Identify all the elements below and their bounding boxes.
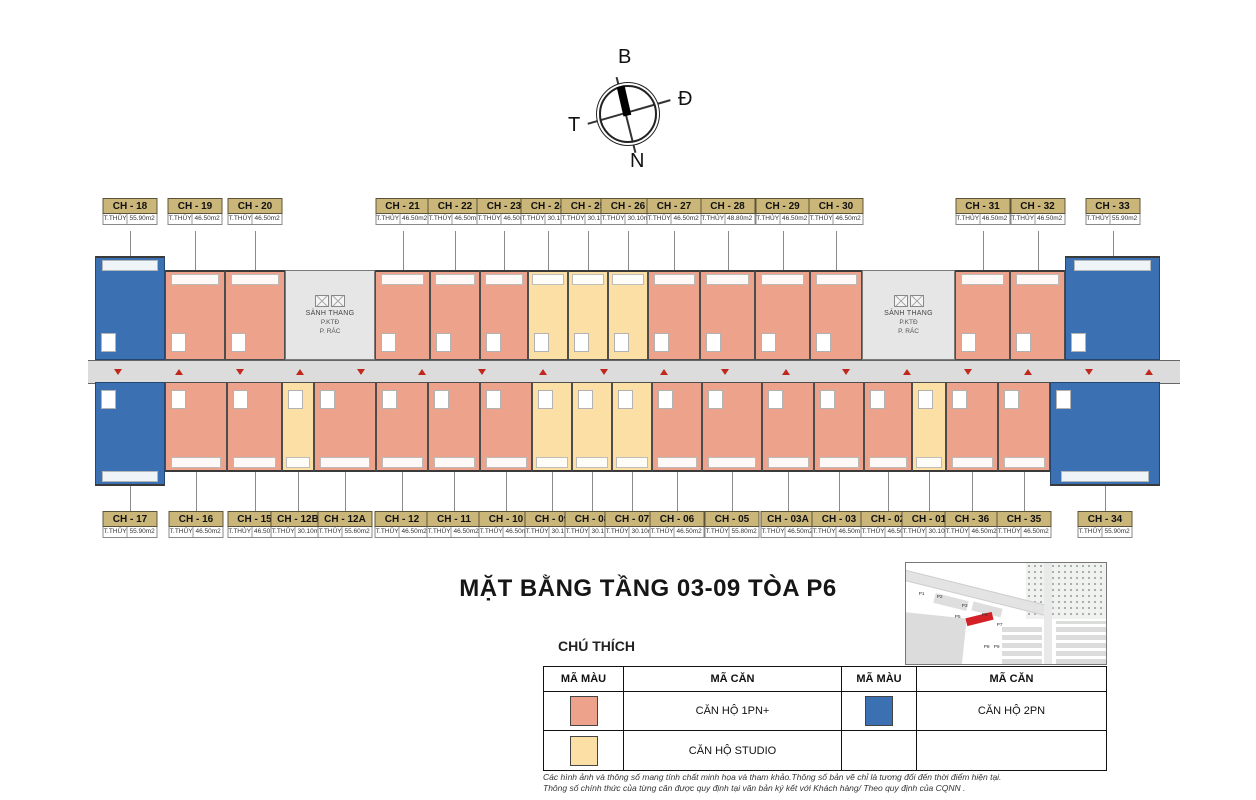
- minimap-label-p1: P1: [919, 592, 925, 597]
- unit-CH-26[interactable]: [608, 270, 648, 360]
- unit-area: T.THỦY46.50m2: [647, 214, 702, 225]
- unit-CH-28[interactable]: [700, 270, 755, 360]
- unit-area: T.THỦY46.50m2: [227, 527, 282, 538]
- unit-area: T.THỦY46.50m2: [812, 527, 867, 538]
- area-value: 46.50m2: [452, 527, 481, 537]
- unit-label-CH-12B[interactable]: CH - 12BT.THỦY30.10m2: [271, 511, 326, 538]
- unit-area: T.THỦY55.80m2: [705, 527, 760, 538]
- compass-east-label: Đ: [678, 88, 692, 111]
- unit-label-CH-21[interactable]: CH - 21T.THỦY46.50m2: [375, 198, 430, 225]
- unit-area: T.THỦY55.90m2: [1085, 214, 1140, 225]
- unit-label-CH-20[interactable]: CH - 20T.THỦY46.50m2: [228, 198, 283, 225]
- unit-area: T.THỦY46.50m2: [761, 527, 816, 538]
- unit-code: CH - 29: [755, 198, 810, 214]
- leader-line: [728, 231, 729, 273]
- legend-heading: CHÚ THÍCH: [558, 638, 635, 654]
- door-marker-icon: [660, 369, 668, 375]
- compass: B Đ N T: [560, 40, 720, 180]
- area-value: 46.50m2: [675, 527, 704, 537]
- unit-area: T.THỦY46.50m2: [861, 527, 916, 538]
- leader-line: [298, 469, 299, 513]
- legend-label-1pn: CĂN HỘ 1PN+: [624, 692, 842, 731]
- unit-label-CH-08[interactable]: CH - 08T.THỦY30.10m2: [565, 511, 620, 538]
- unit-CH-19[interactable]: [165, 270, 225, 360]
- compass-west-label: T: [568, 114, 580, 137]
- unit-code: CH - 23: [477, 198, 532, 214]
- legend-swatch-cell: [842, 692, 917, 731]
- unit-code: CH - 07: [605, 511, 660, 527]
- area-value: 46.50m2: [1022, 527, 1051, 537]
- leader-line: [888, 469, 889, 513]
- leader-line: [677, 469, 678, 513]
- unit-CH-06[interactable]: [652, 382, 702, 472]
- core-right: SẢNH THANGP.KTĐP. RÁC: [862, 270, 955, 360]
- unit-code: CH - 03: [812, 511, 867, 527]
- core-trash-label: P. RÁC: [898, 329, 919, 336]
- area-value: 46.50m2: [252, 527, 281, 537]
- leader-line: [788, 469, 789, 513]
- area-prefix: T.THỦY: [526, 527, 550, 537]
- unit-CH-09[interactable]: [532, 382, 572, 472]
- unit-code: CH - 22: [428, 198, 483, 214]
- unit-CH-12B[interactable]: [282, 382, 314, 472]
- unit-label-CH-03[interactable]: CH - 03T.THỦY46.50m2: [812, 511, 867, 538]
- area-prefix: T.THỦY: [1086, 214, 1110, 224]
- minimap-block-grid: [1002, 627, 1042, 664]
- area-value: 55.90m2: [128, 214, 157, 224]
- unit-code: CH - 21: [375, 198, 430, 214]
- area-value: 55.90m2: [128, 527, 157, 537]
- unit-label-CH-36[interactable]: CH - 36T.THỦY46.50m2: [945, 511, 1000, 538]
- unit-label-CH-27[interactable]: CH - 27T.THỦY46.50m2: [647, 198, 702, 225]
- door-marker-icon: [175, 369, 183, 375]
- area-prefix: T.THỦY: [478, 214, 502, 224]
- core-trash-label: P. RÁC: [320, 329, 341, 336]
- minimap-label-p6: P6: [982, 613, 988, 618]
- area-value: 46.50m2: [502, 214, 531, 224]
- minimap-road: [1044, 562, 1052, 665]
- elevator-icon: [894, 295, 908, 307]
- unit-label-CH-06[interactable]: CH - 06T.THỦY46.50m2: [650, 511, 705, 538]
- area-prefix: T.THỦY: [376, 527, 400, 537]
- area-value: 46.50m2: [672, 214, 701, 224]
- unit-code: CH - 30: [809, 198, 864, 214]
- area-prefix: T.THỦY: [429, 214, 453, 224]
- leader-line: [255, 469, 256, 513]
- unit-code: CH - 08: [565, 511, 620, 527]
- area-value: 30.10m2: [296, 527, 325, 537]
- area-value: 55.90m2: [1103, 527, 1132, 537]
- door-marker-icon: [782, 369, 790, 375]
- unit-label-CH-35[interactable]: CH - 35T.THỦY46.50m2: [997, 511, 1052, 538]
- unit-CH-08[interactable]: [572, 382, 612, 472]
- unit-code: CH - 25: [561, 198, 616, 214]
- unit-code: CH - 35: [997, 511, 1052, 527]
- door-marker-icon: [1145, 369, 1153, 375]
- minimap-label-p7: P7: [997, 623, 1003, 628]
- unit-area: T.THỦY46.50m2: [479, 527, 534, 538]
- elevator-icon: [331, 295, 345, 307]
- area-value: 30.10m2: [590, 527, 619, 537]
- unit-label-CH-02[interactable]: CH - 02T.THỦY46.50m2: [861, 511, 916, 538]
- unit-CH-25[interactable]: [568, 270, 608, 360]
- unit-label-CH-07[interactable]: CH - 07T.THỦY30.10m2: [605, 511, 660, 538]
- minimap-tower-p6-highlight: [965, 612, 993, 626]
- unit-CH-02[interactable]: [864, 382, 912, 472]
- unit-CH-20[interactable]: [225, 270, 285, 360]
- leader-line: [588, 231, 589, 273]
- unit-area: T.THỦY55.60m2: [318, 527, 373, 538]
- area-value: 55.90m2: [1110, 214, 1139, 224]
- area-prefix: T.THỦY: [946, 527, 970, 537]
- legend-col-header: MÃ MÀU: [842, 667, 917, 692]
- area-prefix: T.THỦY: [170, 527, 194, 537]
- leader-line: [983, 231, 984, 273]
- unit-CH-31[interactable]: [955, 270, 1010, 360]
- unit-label-CH-30[interactable]: CH - 30T.THỦY46.50m2: [809, 198, 864, 225]
- unit-label-CH-03A[interactable]: CH - 03AT.THỦY46.50m2: [761, 511, 816, 538]
- unit-CH-03[interactable]: [814, 382, 864, 472]
- unit-code: CH - 20: [228, 198, 283, 214]
- unit-area: T.THỦY46.50m2: [427, 527, 482, 538]
- door-marker-icon: [539, 369, 547, 375]
- unit-CH-07[interactable]: [612, 382, 652, 472]
- area-value: 30.10m2: [630, 527, 659, 537]
- leader-line: [1038, 231, 1039, 273]
- area-prefix: T.THỦY: [956, 214, 980, 224]
- area-value: 46.50m2: [400, 214, 429, 224]
- area-prefix: T.THỦY: [272, 527, 296, 537]
- location-minimap[interactable]: P1 P2 P3 P5 P6 P7 P8 P9: [905, 562, 1107, 665]
- unit-area: T.THỦY46.50m2: [1010, 214, 1065, 225]
- unit-CH-21[interactable]: [375, 270, 430, 360]
- area-prefix: T.THỦY: [104, 214, 128, 224]
- disclaimer-line-1: Các hình ảnh và thông số mang tính chất …: [543, 772, 1143, 783]
- unit-code: CH - 15: [227, 511, 282, 527]
- unit-area: T.THỦY55.90m2: [1078, 527, 1133, 538]
- unit-CH-36[interactable]: [946, 382, 998, 472]
- leader-line: [929, 469, 930, 513]
- area-prefix: T.THỦY: [428, 527, 452, 537]
- minimap-label-p2: P2: [937, 595, 943, 600]
- unit-code: CH - 18: [103, 198, 158, 214]
- unit-area: T.THỦY46.50m2: [755, 214, 810, 225]
- area-prefix: T.THỦY: [1079, 527, 1103, 537]
- minimap-label-p9: P9: [994, 645, 1000, 650]
- unit-code: CH - 09: [525, 511, 580, 527]
- area-prefix: T.THỦY: [810, 214, 834, 224]
- door-marker-icon: [600, 369, 608, 375]
- unit-CH-11[interactable]: [428, 382, 480, 472]
- unit-area: T.THỦY30.10m2: [521, 214, 576, 225]
- unit-CH-34[interactable]: [1050, 382, 1160, 486]
- area-prefix: T.THỦY: [651, 527, 675, 537]
- compass-south-label: N: [630, 150, 644, 173]
- unit-CH-30[interactable]: [810, 270, 862, 360]
- legend-empty-cell: [917, 731, 1106, 770]
- unit-label-CH-09[interactable]: CH - 09T.THỦY30.10m2: [525, 511, 580, 538]
- door-marker-icon: [842, 369, 850, 375]
- leader-line: [195, 231, 196, 273]
- unit-CH-24[interactable]: [528, 270, 568, 360]
- area-value: 46.50m2: [834, 214, 863, 224]
- unit-code: CH - 11: [427, 511, 482, 527]
- area-value: 46.50m2: [193, 214, 222, 224]
- unit-label-CH-23[interactable]: CH - 23T.THỦY46.50m2: [477, 198, 532, 225]
- unit-CH-18[interactable]: [95, 256, 165, 360]
- leader-line: [674, 231, 675, 273]
- unit-label-CH-33[interactable]: CH - 33T.THỦY55.90m2: [1085, 198, 1140, 225]
- minimap-label-p3: P3: [962, 604, 968, 609]
- unit-code: CH - 01: [902, 511, 957, 527]
- unit-CH-16[interactable]: [165, 382, 227, 472]
- area-prefix: T.THỦY: [566, 527, 590, 537]
- unit-code: CH - 06: [650, 511, 705, 527]
- unit-area: T.THỦY48.80m2: [700, 214, 755, 225]
- unit-area: T.THỦY46.50m2: [375, 527, 430, 538]
- unit-label-CH-15[interactable]: CH - 15T.THỦY46.50m2: [227, 511, 282, 538]
- leader-line: [196, 469, 197, 513]
- area-prefix: T.THỦY: [319, 527, 343, 537]
- leader-line: [839, 469, 840, 513]
- area-prefix: T.THỦY: [602, 214, 626, 224]
- unit-CH-22[interactable]: [430, 270, 480, 360]
- legend-swatch-cell: [544, 731, 624, 770]
- area-value: 30.10m2: [626, 214, 655, 224]
- unit-CH-10[interactable]: [480, 382, 532, 472]
- unit-code: CH - 12B: [271, 511, 326, 527]
- unit-code: CH - 32: [1010, 198, 1065, 214]
- unit-area: T.THỦY46.50m2: [997, 527, 1052, 538]
- area-prefix: T.THỦY: [762, 527, 786, 537]
- unit-code: CH - 12: [375, 511, 430, 527]
- unit-label-CH-32[interactable]: CH - 32T.THỦY46.50m2: [1010, 198, 1065, 225]
- unit-label-CH-17[interactable]: CH - 17T.THỦY55.90m2: [103, 511, 158, 538]
- area-value: 46.50m2: [504, 527, 533, 537]
- unit-label-CH-22[interactable]: CH - 22T.THỦY46.50m2: [428, 198, 483, 225]
- unit-code: CH - 03A: [761, 511, 816, 527]
- unit-code: CH - 02: [861, 511, 916, 527]
- unit-area: T.THỦY30.10m2: [605, 527, 660, 538]
- area-prefix: T.THỦY: [169, 214, 193, 224]
- unit-area: T.THỦY55.90m2: [103, 214, 158, 225]
- unit-code: CH - 31: [955, 198, 1010, 214]
- corridor: [88, 360, 1180, 384]
- area-prefix: T.THỦY: [998, 527, 1022, 537]
- unit-label-CH-10[interactable]: CH - 10T.THỦY46.50m2: [479, 511, 534, 538]
- area-prefix: T.THỦY: [706, 527, 730, 537]
- swatch-1pn: [570, 696, 598, 726]
- leader-line: [402, 469, 403, 513]
- unit-area: T.THỦY46.50m2: [169, 527, 224, 538]
- unit-CH-01[interactable]: [912, 382, 946, 472]
- area-value: 46.50m2: [194, 527, 223, 537]
- unit-area: T.THỦY30.10m2: [525, 527, 580, 538]
- area-value: 46.50m2: [837, 527, 866, 537]
- area-prefix: T.THỦY: [228, 527, 252, 537]
- area-prefix: T.THỦY: [606, 527, 630, 537]
- unit-CH-12[interactable]: [376, 382, 428, 472]
- leader-line: [506, 469, 507, 513]
- unit-label-CH-01[interactable]: CH - 01T.THỦY30.10m2: [902, 511, 957, 538]
- door-marker-icon: [903, 369, 911, 375]
- unit-area: T.THỦY30.10m2: [601, 214, 656, 225]
- legend-col-header: MÃ CĂN: [917, 667, 1106, 692]
- unit-CH-27[interactable]: [648, 270, 700, 360]
- elevator-icon: [910, 295, 924, 307]
- minimap-block: [905, 612, 967, 665]
- unit-CH-15[interactable]: [227, 382, 282, 472]
- unit-area: T.THỦY30.10m2: [902, 527, 957, 538]
- core-left: SẢNH THANGP.KTĐP. RÁC: [285, 270, 375, 360]
- unit-area: T.THỦY46.50m2: [477, 214, 532, 225]
- unit-label-CH-26[interactable]: CH - 26T.THỦY30.10m2: [601, 198, 656, 225]
- legend-swatch-cell: [544, 692, 624, 731]
- disclaimer-text: Các hình ảnh và thông số mang tính chất …: [543, 772, 1143, 795]
- minimap-label-p8: P8: [984, 645, 990, 650]
- unit-label-CH-34[interactable]: CH - 34T.THỦY55.90m2: [1078, 511, 1133, 538]
- leader-line: [1024, 469, 1025, 513]
- area-prefix: T.THỦY: [562, 214, 586, 224]
- legend-label-2pn: CĂN HỘ 2PN: [917, 692, 1106, 731]
- leader-line: [454, 469, 455, 513]
- leader-line: [403, 231, 404, 273]
- leader-line: [632, 469, 633, 513]
- area-value: 46.50m2: [400, 527, 429, 537]
- area-value: 46.50m2: [970, 527, 999, 537]
- unit-label-CH-24[interactable]: CH - 24T.THỦY30.10m2: [521, 198, 576, 225]
- door-marker-icon: [1024, 369, 1032, 375]
- area-value: 46.50m2: [886, 527, 915, 537]
- compass-north-label: B: [618, 46, 631, 69]
- unit-code: CH - 10: [479, 511, 534, 527]
- unit-code: CH - 28: [700, 198, 755, 214]
- area-value: 48.80m2: [725, 214, 754, 224]
- unit-CH-05[interactable]: [702, 382, 762, 472]
- legend-empty-cell: [842, 731, 917, 770]
- unit-label-CH-16[interactable]: CH - 16T.THỦY46.50m2: [169, 511, 224, 538]
- swatch-studio: [570, 736, 598, 766]
- door-marker-icon: [114, 369, 122, 375]
- legend-table: MÃ MÀU MÃ CĂN MÃ MÀU MÃ CĂN CĂN HỘ 1PN+ …: [543, 666, 1107, 771]
- unit-CH-29[interactable]: [755, 270, 810, 360]
- unit-code: CH - 17: [103, 511, 158, 527]
- area-prefix: T.THỦY: [104, 527, 128, 537]
- area-prefix: T.THỦY: [1011, 214, 1035, 224]
- unit-area: T.THỦY30.10m2: [565, 527, 620, 538]
- unit-area: T.THỦY46.50m2: [809, 214, 864, 225]
- area-value: 30.10m2: [550, 527, 579, 537]
- unit-CH-12A[interactable]: [314, 382, 376, 472]
- area-value: 46.50m2: [980, 214, 1009, 224]
- unit-code: CH - 26: [601, 198, 656, 214]
- door-marker-icon: [1085, 369, 1093, 375]
- unit-code: CH - 19: [168, 198, 223, 214]
- leader-line: [783, 231, 784, 273]
- unit-area: T.THỦY55.90m2: [103, 527, 158, 538]
- unit-code: CH - 27: [647, 198, 702, 214]
- area-value: 30.10m2: [586, 214, 615, 224]
- floor-plan-page: B Đ N T SẢNH THANGP.KTĐP. RÁCSẢNH THANGP…: [0, 0, 1256, 800]
- unit-CH-03A[interactable]: [762, 382, 814, 472]
- area-value: 55.60m2: [343, 527, 372, 537]
- door-marker-icon: [418, 369, 426, 375]
- unit-label-CH-11[interactable]: CH - 11T.THỦY46.50m2: [427, 511, 482, 538]
- page-title: MẶT BẰNG TẦNG 03-09 TÒA P6: [378, 575, 918, 603]
- unit-label-CH-31[interactable]: CH - 31T.THỦY46.50m2: [955, 198, 1010, 225]
- unit-label-CH-19[interactable]: CH - 19T.THỦY46.50m2: [168, 198, 223, 225]
- area-prefix: T.THỦY: [701, 214, 725, 224]
- leader-line: [972, 469, 973, 513]
- area-prefix: T.THỦY: [813, 527, 837, 537]
- door-marker-icon: [236, 369, 244, 375]
- area-value: 46.50m2: [1035, 214, 1064, 224]
- door-marker-icon: [964, 369, 972, 375]
- area-value: 46.50m2: [780, 214, 809, 224]
- unit-label-CH-18[interactable]: CH - 18T.THỦY55.90m2: [103, 198, 158, 225]
- area-prefix: T.THỦY: [756, 214, 780, 224]
- area-value: 46.50m2: [786, 527, 815, 537]
- legend-col-header: MÃ MÀU: [544, 667, 624, 692]
- unit-label-CH-29[interactable]: CH - 29T.THỦY46.50m2: [755, 198, 810, 225]
- unit-label-CH-12A[interactable]: CH - 12AT.THỦY55.60m2: [318, 511, 373, 538]
- unit-code: CH - 36: [945, 511, 1000, 527]
- unit-area: T.THỦY46.50m2: [945, 527, 1000, 538]
- legend-label-studio: CĂN HỘ STUDIO: [624, 731, 842, 770]
- core-lobby-label: SẢNH THANG: [306, 310, 355, 317]
- unit-label-CH-05[interactable]: CH - 05T.THỦY55.80m2: [705, 511, 760, 538]
- building-top-row: SẢNH THANGP.KTĐP. RÁCSẢNH THANGP.KTĐP. R…: [95, 270, 1160, 360]
- door-marker-icon: [357, 369, 365, 375]
- area-prefix: T.THỦY: [480, 527, 504, 537]
- unit-label-CH-25[interactable]: CH - 25T.THỦY30.10m2: [561, 198, 616, 225]
- leader-line: [255, 231, 256, 273]
- legend-col-header: MÃ CĂN: [624, 667, 842, 692]
- leader-line: [836, 231, 837, 273]
- unit-CH-32[interactable]: [1010, 270, 1065, 360]
- unit-CH-35[interactable]: [998, 382, 1050, 472]
- leader-line: [628, 231, 629, 273]
- unit-code: CH - 05: [705, 511, 760, 527]
- leader-line: [732, 469, 733, 513]
- area-value: 30.10m2: [927, 527, 956, 537]
- unit-area: T.THỦY46.50m2: [428, 214, 483, 225]
- area-value: 46.50m2: [253, 214, 282, 224]
- unit-area: T.THỦY30.10m2: [561, 214, 616, 225]
- unit-code: CH - 34: [1078, 511, 1133, 527]
- unit-label-CH-12[interactable]: CH - 12T.THỦY46.50m2: [375, 511, 430, 538]
- unit-code: CH - 24: [521, 198, 576, 214]
- unit-CH-17[interactable]: [95, 382, 165, 486]
- unit-CH-33[interactable]: [1065, 256, 1160, 360]
- swatch-2pn: [865, 696, 893, 726]
- unit-code: CH - 16: [169, 511, 224, 527]
- minimap-label-p5: P5: [955, 615, 961, 620]
- leader-line: [592, 469, 593, 513]
- unit-CH-23[interactable]: [480, 270, 528, 360]
- elevator-icon: [315, 295, 329, 307]
- area-prefix: T.THỦY: [648, 214, 672, 224]
- unit-code: CH - 33: [1085, 198, 1140, 214]
- leader-line: [552, 469, 553, 513]
- leader-line: [504, 231, 505, 273]
- unit-label-CH-28[interactable]: CH - 28T.THỦY48.80m2: [700, 198, 755, 225]
- area-prefix: T.THỦY: [862, 527, 886, 537]
- unit-code: CH - 12A: [318, 511, 373, 527]
- unit-area: T.THỦY46.50m2: [650, 527, 705, 538]
- area-prefix: T.THỦY: [376, 214, 400, 224]
- area-value: 55.80m2: [730, 527, 759, 537]
